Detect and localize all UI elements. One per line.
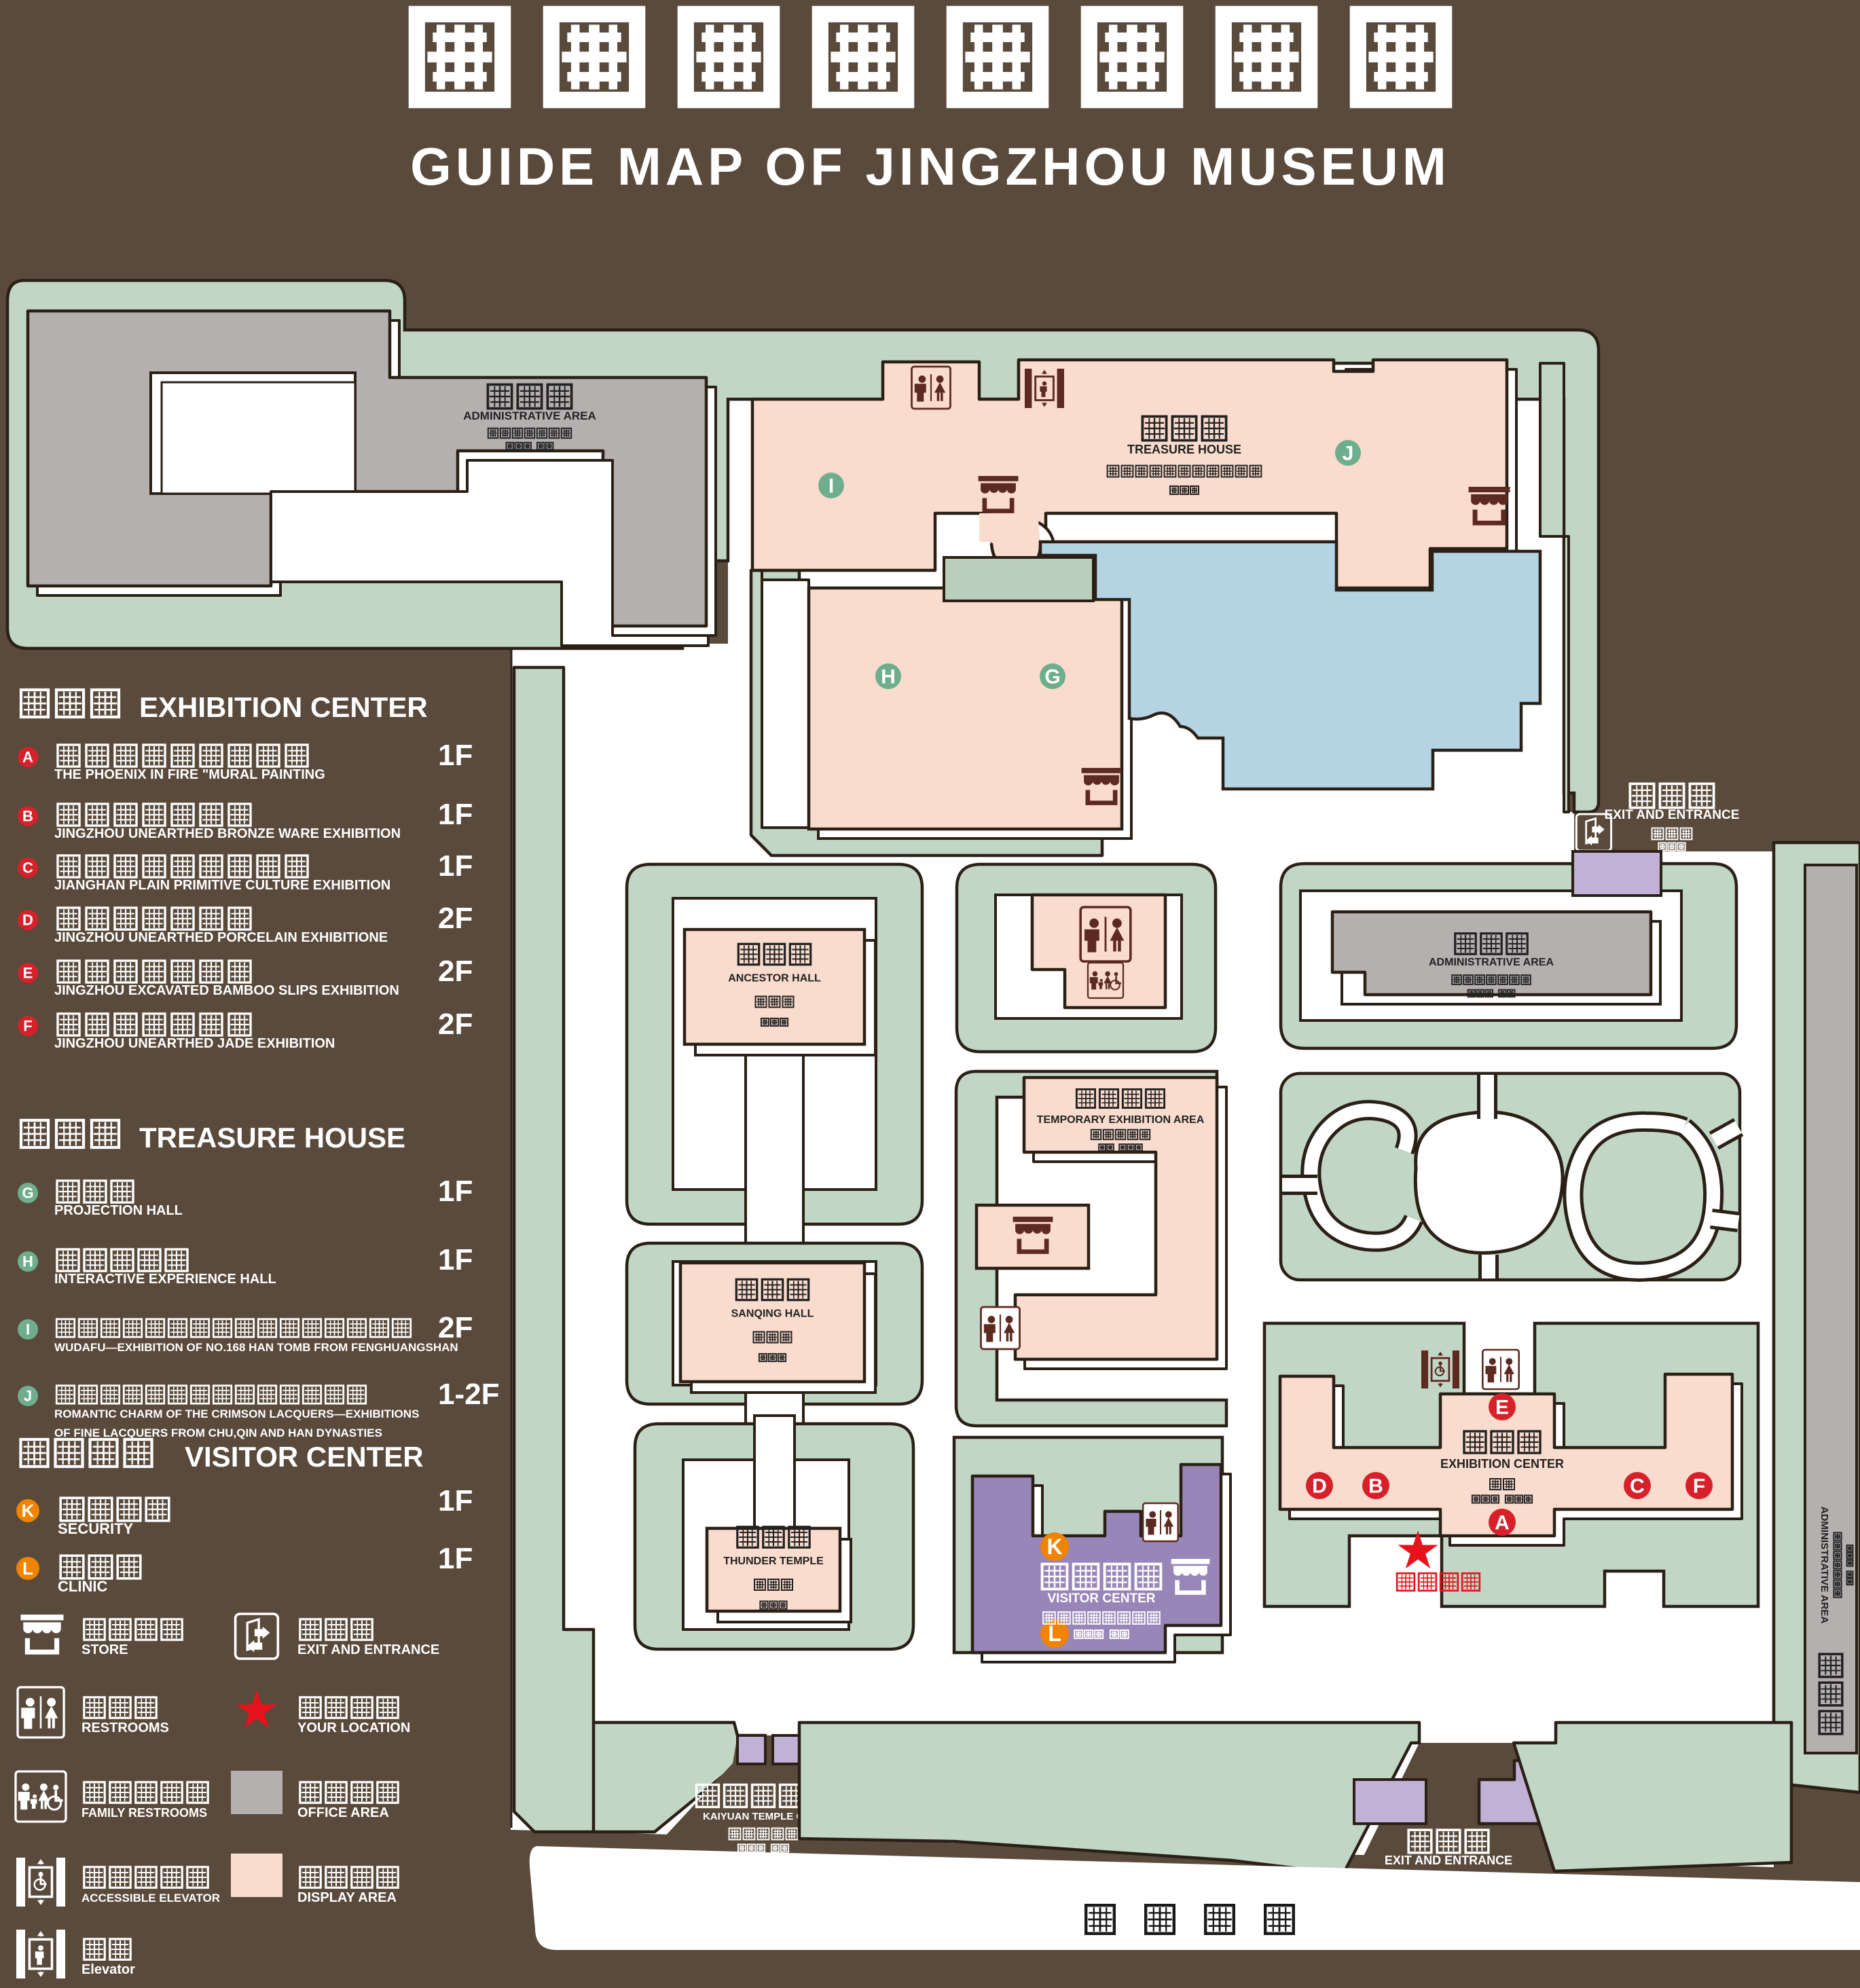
svg-text:I: I <box>26 1321 30 1338</box>
svg-text:TEMPORARY EXHIBITION AREA: TEMPORARY EXHIBITION AREA <box>1037 1114 1205 1126</box>
svg-text:B: B <box>22 808 33 825</box>
svg-text:K: K <box>1046 1534 1062 1559</box>
svg-text:YOUR LOCATION: YOUR LOCATION <box>297 1720 410 1735</box>
svg-text:C: C <box>22 860 33 877</box>
svg-text:JINGZHOU EXCAVATED BAMBOO SLIP: JINGZHOU EXCAVATED BAMBOO SLIPS EXHIBITI… <box>54 983 399 998</box>
svg-text:1F: 1F <box>438 1542 473 1575</box>
svg-text:OFFICE AREA: OFFICE AREA <box>297 1805 389 1820</box>
svg-text:THE PHOENIX IN FIRE "MURAL PAI: THE PHOENIX IN FIRE "MURAL PAINTING <box>54 767 325 782</box>
svg-text:DISPLAY AREA: DISPLAY AREA <box>297 1890 397 1905</box>
svg-text:1F: 1F <box>438 1243 473 1276</box>
svg-text:A: A <box>22 749 33 766</box>
svg-text:L: L <box>1048 1621 1061 1646</box>
svg-text:JINGZHOU UNEARTHED PORCELAIN E: JINGZHOU UNEARTHED PORCELAIN EXHIBITIONE <box>54 930 388 945</box>
svg-text:SANQING HALL: SANQING HALL <box>731 1308 814 1320</box>
svg-text:EXIT AND ENTRANCE: EXIT AND ENTRANCE <box>297 1642 439 1657</box>
svg-text:1F: 1F <box>438 1175 473 1208</box>
svg-text:EXHIBITION CENTER: EXHIBITION CENTER <box>139 691 428 723</box>
svg-text:I: I <box>828 475 834 498</box>
svg-text:1F: 1F <box>438 1484 473 1517</box>
svg-text:C: C <box>1630 1475 1645 1498</box>
svg-text:INTERACTIVE EXPERIENCE HALL: INTERACTIVE EXPERIENCE HALL <box>54 1272 276 1287</box>
svg-text:ADMINISTRATIVE AREA: ADMINISTRATIVE AREA <box>463 409 596 422</box>
svg-text:VISITOR CENTER: VISITOR CENTER <box>185 1441 424 1473</box>
svg-text:JINGZHOU UNEARTHED JADE EXHIBI: JINGZHOU UNEARTHED JADE EXHIBITION <box>54 1036 335 1051</box>
svg-text:K: K <box>22 1501 35 1521</box>
svg-text:ROMANTIC CHARM OF THE CRIMSON: ROMANTIC CHARM OF THE CRIMSON LACQUERS—E… <box>54 1407 419 1420</box>
svg-text:JIANGHAN PLAIN PRIMITIVE CULTU: JIANGHAN PLAIN PRIMITIVE CULTURE EXHIBIT… <box>54 878 390 893</box>
svg-text:H: H <box>881 666 896 688</box>
svg-text:OF FINE LACQUERS FROM CHU,QIN: OF FINE LACQUERS FROM CHU,QIN AND HAN DY… <box>54 1426 382 1439</box>
svg-text:ADMINISTRATIVE AREA: ADMINISTRATIVE AREA <box>1429 957 1554 968</box>
svg-text:FAMILY RESTROOMS: FAMILY RESTROOMS <box>81 1806 207 1820</box>
svg-text:EXHIBITION CENTER: EXHIBITION CENTER <box>1440 1457 1564 1471</box>
svg-text:1F: 1F <box>438 849 473 883</box>
svg-text:2F: 2F <box>438 955 473 988</box>
svg-text:D: D <box>1312 1475 1327 1498</box>
svg-text:E: E <box>23 965 33 982</box>
svg-text:J: J <box>1343 443 1354 465</box>
svg-text:E: E <box>1495 1397 1509 1419</box>
svg-text:2F: 2F <box>438 1008 473 1041</box>
svg-text:ACCESSIBLE ELEVATOR: ACCESSIBLE ELEVATOR <box>81 1892 220 1904</box>
svg-text:1F: 1F <box>438 739 473 772</box>
svg-text:1-2F: 1-2F <box>438 1378 499 1411</box>
svg-text:STORE: STORE <box>81 1642 128 1657</box>
svg-text:1F: 1F <box>438 798 473 831</box>
svg-text:J: J <box>24 1388 32 1405</box>
svg-text:B: B <box>1368 1475 1383 1498</box>
svg-text:2F: 2F <box>438 1311 473 1344</box>
svg-text:ADMINISTRATIVE AREA: ADMINISTRATIVE AREA <box>1819 1507 1830 1624</box>
svg-text:L: L <box>22 1558 33 1579</box>
svg-text:A: A <box>1495 1512 1510 1534</box>
svg-text:JINGZHOU UNEARTHED BRONZE WARE: JINGZHOU UNEARTHED BRONZE WARE EXHIBITIO… <box>54 826 401 841</box>
svg-text:D: D <box>22 912 33 929</box>
svg-text:G: G <box>22 1185 33 1202</box>
svg-text:GUIDE MAP OF JINGZHOU MUSEUM: GUIDE MAP OF JINGZHOU MUSEUM <box>410 136 1451 196</box>
svg-text:2F: 2F <box>438 902 473 935</box>
svg-text:EXIT AND ENTRANCE: EXIT AND ENTRANCE <box>1385 1854 1512 1867</box>
svg-text:F: F <box>23 1018 32 1035</box>
svg-text:TREASURE HOUSE: TREASURE HOUSE <box>1127 443 1241 456</box>
svg-text:SECURITY: SECURITY <box>58 1520 134 1537</box>
svg-text:WUDAFU—EXHIBITION OF NO.168 HA: WUDAFU—EXHIBITION OF NO.168 HAN TOMB FRO… <box>54 1341 458 1354</box>
svg-text:VISITOR CENTER: VISITOR CENTER <box>1047 1591 1155 1606</box>
svg-text:THUNDER TEMPLE: THUNDER TEMPLE <box>723 1556 824 1567</box>
svg-text:CLINIC: CLINIC <box>58 1578 107 1595</box>
svg-text:EXIT AND ENTRANCE: EXIT AND ENTRANCE <box>1605 808 1740 822</box>
svg-text:Elevator: Elevator <box>81 1962 135 1977</box>
svg-text:ANCESTOR HALL: ANCESTOR HALL <box>728 973 821 984</box>
svg-text:G: G <box>1044 666 1060 688</box>
svg-text:TREASURE HOUSE: TREASURE HOUSE <box>139 1122 405 1154</box>
svg-text:RESTROOMS: RESTROOMS <box>81 1720 169 1735</box>
svg-text:PROJECTION HALL: PROJECTION HALL <box>54 1203 183 1218</box>
svg-text:H: H <box>22 1253 33 1270</box>
svg-text:F: F <box>1693 1475 1705 1498</box>
